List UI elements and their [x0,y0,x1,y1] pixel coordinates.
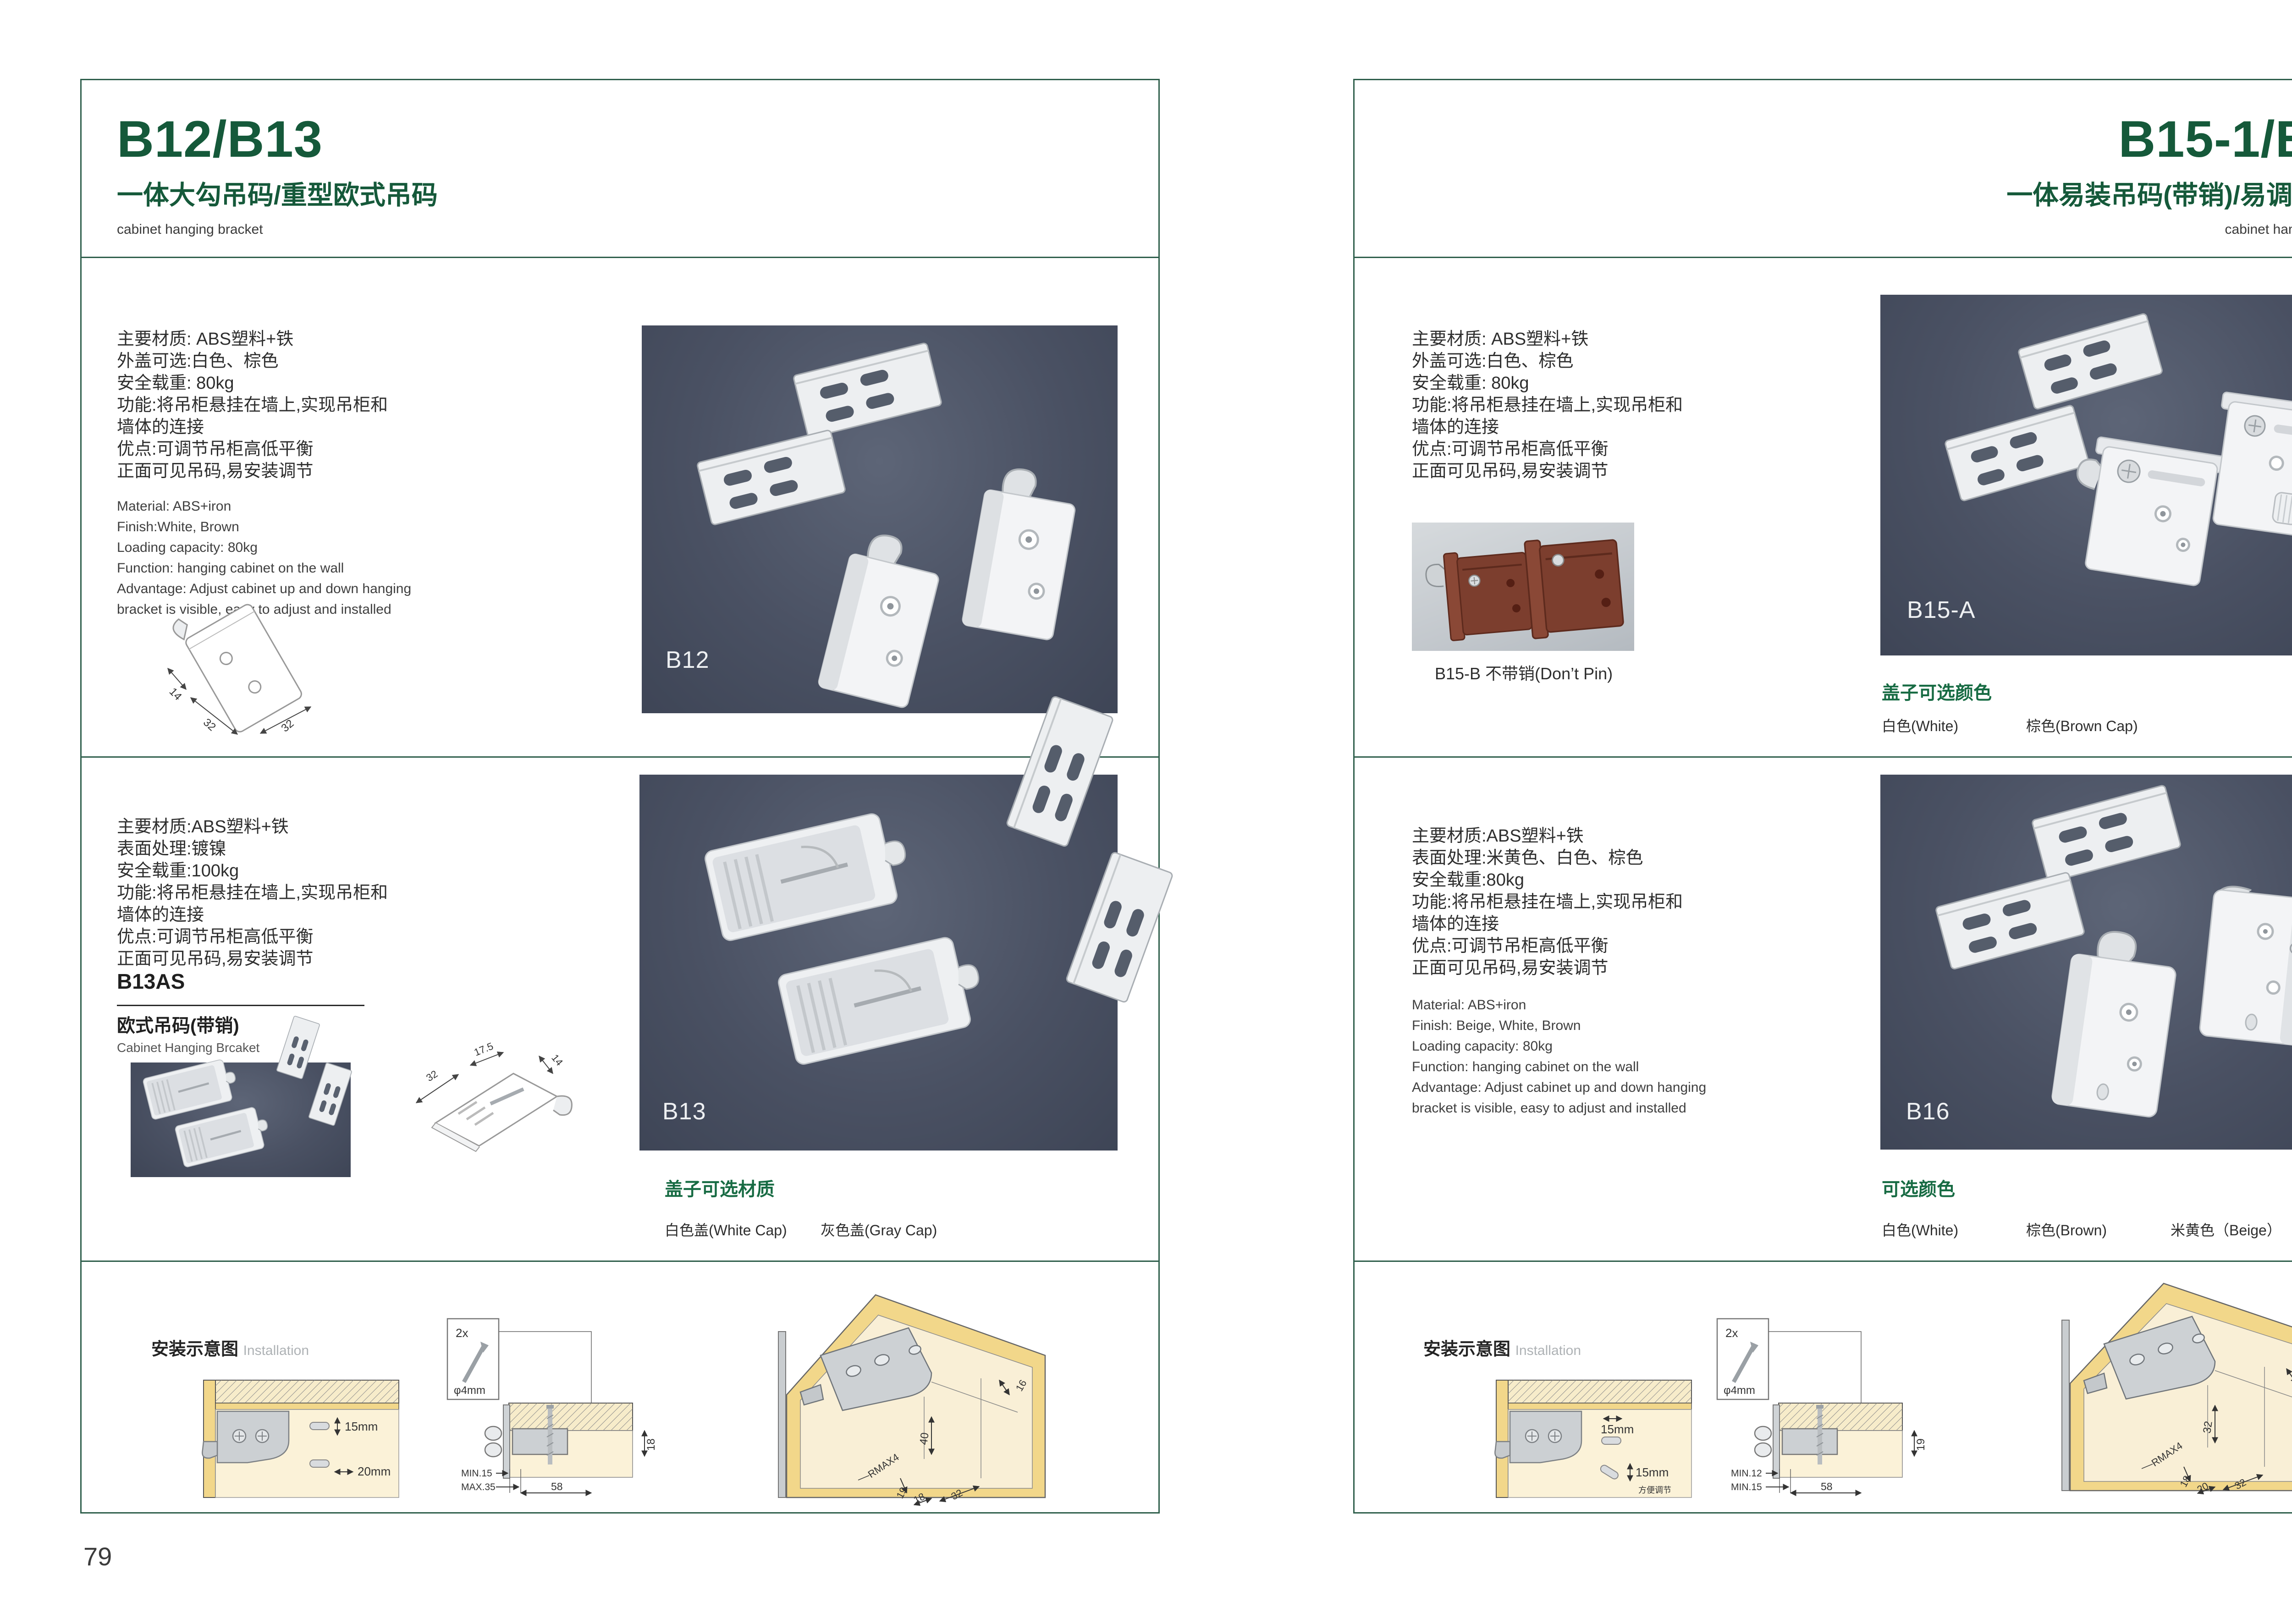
page-subtitle: 一体大勾吊码/重型欧式吊码 [117,182,438,209]
spec-line-en: Material: ABS+iron [1412,995,1706,1015]
dim-label: MIN.12 [1731,1468,1762,1479]
dim-label: 32 [2201,1420,2215,1434]
spec-line: 功能:将吊柜悬挂在墙上,实现吊柜和 [1412,394,1683,416]
spec-line: 墙体的连接 [1412,913,1683,935]
page-number: 79 [83,1544,112,1569]
spec-line: 优点:可调节吊柜高低平衡 [117,926,388,948]
b12-products-illustration [642,325,1118,713]
dim-label: 19 [1915,1438,1927,1451]
left-divider-section [80,756,1160,758]
model-code: B13AS [117,971,185,992]
spec-line: 安全载重: 80kg [117,372,388,394]
spec-block-en: Material: ABS+iron Finish: Beige, White,… [1412,995,1706,1118]
dim-label: 14 [167,685,184,703]
spec-line: 表面处理:米黄色、白色、棕色 [1412,847,1683,869]
b13as-product-photo [131,1062,351,1177]
spec-line: 安全载重:100kg [117,860,388,882]
b12-dimension-drawing: 14 32 32 [124,600,362,738]
spec-line: 主要材质:ABS塑料+铁 [1412,825,1683,847]
install-diagram-wall-section: 15mm 15mm 方便调节 [1490,1373,1705,1506]
spec-line: 功能:将吊柜悬挂在墙上,实现吊柜和 [117,394,388,416]
spec-line-en: Loading capacity: 80kg [117,537,411,558]
b13as-dimension-drawing: 32 17.5 14 [403,1045,596,1178]
cap-option: 棕色(Brown Cap) [2026,719,2138,733]
cap-options-title: 盖子可选材质 [665,1180,775,1199]
spec-line-en: Finish: Beige, White, Brown [1412,1015,1706,1036]
dim-label: 40 [917,1432,931,1446]
spec-line: 主要材质: ABS塑料+铁 [117,328,388,350]
spec-line: 安全载重: 80kg [1412,372,1683,394]
spec-line-en: Function: hanging cabinet on the wall [1412,1057,1706,1077]
install-title-en: Installation [243,1343,309,1358]
spec-line: 主要材质: ABS塑料+铁 [1412,328,1683,350]
install-title: 安装示意图 Installation [1423,1341,1581,1358]
spec-line: 墙体的连接 [1412,416,1683,438]
install-diagram-isometric: 30 32 RMAX4 18 20 32 [1989,1265,2292,1499]
page-subtitle: 一体易装吊码(带销)/易调节吊码 [1650,182,2292,209]
screw-diameter: φ4mm [454,1384,485,1397]
right-divider-title [1353,257,2292,258]
spec-line: 正面可见吊码,易安装调节 [117,948,388,970]
left-divider-install [80,1261,1160,1262]
dim-label: 32 [279,717,297,735]
cap-option: 米黄色（Beige） [2171,1223,2281,1238]
screw-diameter: φ4mm [1724,1384,1755,1397]
spec-line: 正面可见吊码,易安装调节 [1412,460,1683,482]
spec-line-en: Finish:White, Brown [117,517,411,537]
spec-line-en: Advantage: Adjust cabinet up and down ha… [117,578,411,599]
install-title-cn: 安装示意图 [151,1340,238,1359]
dim-label: 32 [424,1068,440,1084]
install-diagram-isometric: 16 40 RMAX4 19 18 32 [724,1277,1063,1506]
cap-option: 白色盖(White Cap) [665,1223,787,1238]
install-diagram-screw-section: 2x φ4mm 19 MIN.12 MIN.15 58 [1710,1313,1930,1501]
screw-qty: 2x [456,1326,468,1340]
dim-label: 58 [551,1481,563,1492]
dim-label: 14 [549,1052,565,1068]
b13-products-illustration [639,775,1118,1151]
model-underline [117,1005,364,1006]
install-diagram-wall-section: 15mm 20mm [197,1373,413,1506]
install-title-cn: 安装示意图 [1423,1340,1510,1359]
b13as-products-illustration [131,1062,351,1177]
spec-line: 主要材质:ABS塑料+铁 [117,816,388,838]
b15b-caption: B15-B 不带销(Don’t Pin) [1435,666,1613,682]
spec-line: 外盖可选:白色、棕色 [1412,350,1683,372]
cap-options-title: 可选颜色 [1882,1180,1955,1199]
spec-line-en: Material: ABS+iron [117,496,411,517]
spec-line: 正面可见吊码,易安装调节 [1412,957,1683,979]
spec-line-en: Loading capacity: 80kg [1412,1036,1706,1057]
page-category: cabinet hanging bracket [1650,223,2292,237]
b16-product-photo: B16 [1880,775,2292,1150]
model-name-cn: 欧式吊码(带销) [117,1017,239,1035]
cap-option: 灰色盖(Gray Cap) [821,1223,937,1238]
screw-qty: 2x [1725,1326,1738,1340]
spec-line: 安全载重:80kg [1412,869,1683,891]
right-divider-install [1353,1261,2292,1262]
b13-product-photo: B13 [639,775,1118,1151]
spec-block-cn: 主要材质: ABS塑料+铁 外盖可选:白色、棕色 安全载重: 80kg 功能:将… [117,328,388,482]
dim-label: 20mm [358,1464,391,1478]
cap-option: 白色(White) [1882,719,1958,733]
install-title-en: Installation [1515,1343,1581,1358]
right-divider-section [1353,756,2292,758]
photo-label: B13 [662,1098,706,1125]
spec-line: 优点:可调节吊柜高低平衡 [1412,935,1683,957]
page-title: B12/B13 [117,114,323,165]
dim-label: 58 [1821,1481,1833,1492]
photo-label: B15-A [1907,596,1976,624]
photo-label: B16 [1906,1098,1950,1125]
b15b-product-photo [1412,523,1634,651]
dim-label: 32 [201,716,218,733]
spec-block-cn: 主要材质:ABS塑料+铁 表面处理:米黄色、白色、棕色 安全载重:80kg 功能… [1412,825,1683,979]
b15b-products-illustration [1412,523,1634,651]
dim-label: MIN.15 [1731,1482,1762,1492]
b15a-product-photo: B15-A [1880,295,2292,655]
page-title: B15-1/B16 [1650,114,2292,165]
spec-line: 墙体的连接 [117,416,388,438]
dim-label: 18 [645,1438,657,1451]
spec-line-en: Function: hanging cabinet on the wall [117,558,411,578]
spec-line: 外盖可选:白色、棕色 [117,350,388,372]
spec-line-en: Advantage: Adjust cabinet up and down ha… [1412,1077,1706,1098]
left-divider-title [80,257,1160,258]
install-note: 方便调节 [1638,1486,1671,1495]
page-category: cabinet hanging bracket [117,223,263,237]
model-name-en: Cabinet Hanging Brcaket [117,1041,259,1054]
spec-block-cn: 主要材质: ABS塑料+铁 外盖可选:白色、棕色 安全载重: 80kg 功能:将… [1412,328,1683,482]
spec-line-en: bracket is visible, easy to adjust and i… [1412,1098,1706,1118]
cap-option: 棕色(Brown) [2026,1223,2107,1238]
b16-products-illustration [1880,775,2292,1150]
install-title: 安装示意图 Installation [151,1341,309,1358]
spec-line: 墙体的连接 [117,904,388,926]
dim-label: 15mm [1601,1422,1634,1436]
install-diagram-screw-section: 2x φ4mm 18 MIN.15 MAX.35 58 [440,1313,660,1501]
photo-label: B12 [666,646,710,674]
dim-label: 15mm [345,1420,378,1433]
spec-line: 表面处理:镀镍 [117,838,388,860]
dim-label: 15mm [1636,1465,1669,1479]
spec-line: 正面可见吊码,易安装调节 [117,460,388,482]
spec-line: 优点:可调节吊柜高低平衡 [117,438,388,460]
spec-block-cn: 主要材质:ABS塑料+铁 表面处理:镀镍 安全载重:100kg 功能:将吊柜悬挂… [117,816,388,970]
dim-label: MIN.15 [461,1468,492,1479]
spec-line: 功能:将吊柜悬挂在墙上,实现吊柜和 [1412,891,1683,913]
b12-product-photo: B12 [642,325,1118,713]
dim-label: MAX.35 [461,1482,496,1492]
spec-line: 功能:将吊柜悬挂在墙上,实现吊柜和 [117,882,388,904]
cap-options-title: 盖子可选颜色 [1882,684,1992,702]
catalog-spread: B12/B13 一体大勾吊码/重型欧式吊码 cabinet hanging br… [0,0,2292,1624]
spec-line: 优点:可调节吊柜高低平衡 [1412,438,1683,460]
cap-option: 白色(White) [1882,1223,1958,1238]
